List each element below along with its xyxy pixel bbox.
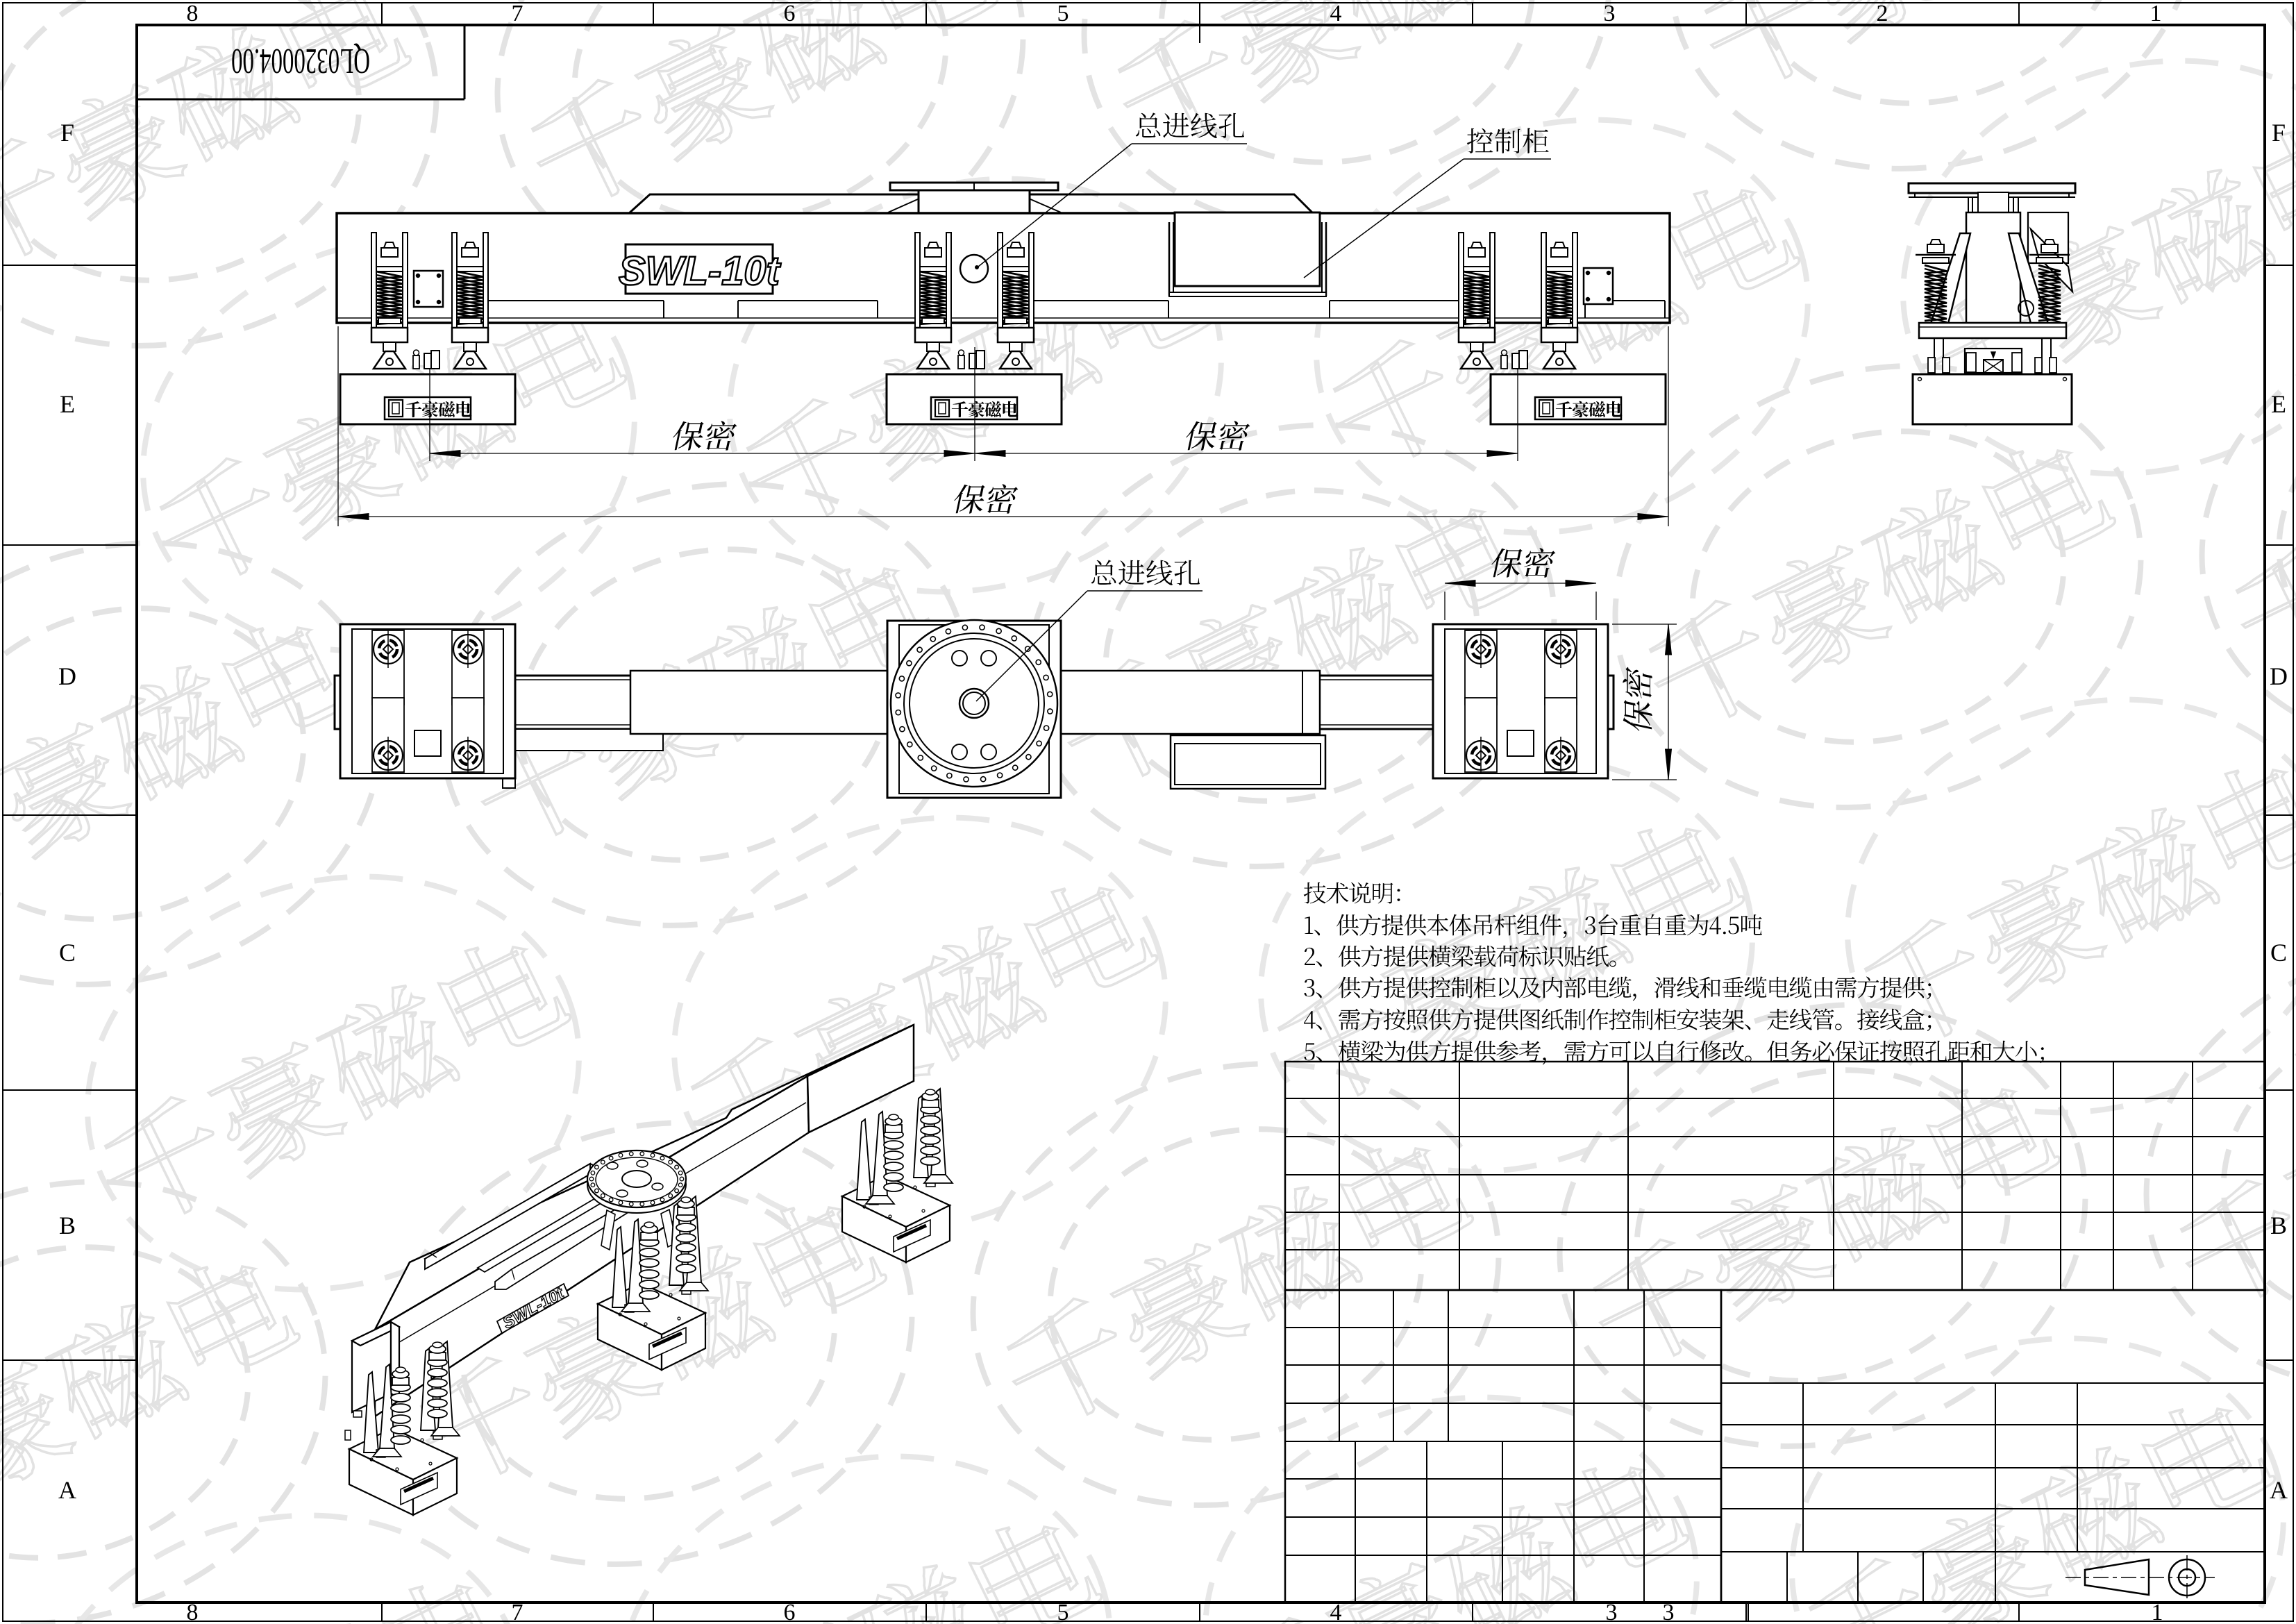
- svg-text:8: 8: [187, 1600, 199, 1624]
- svg-text:5: 5: [1057, 1600, 1069, 1624]
- svg-text:B: B: [2270, 1212, 2287, 1239]
- svg-text:SWL-10t: SWL-10t: [619, 249, 782, 294]
- svg-text:F: F: [2272, 119, 2286, 147]
- svg-text:F: F: [60, 119, 74, 147]
- svg-text:QL0320004.00: QL0320004.00: [231, 41, 370, 81]
- svg-text:8: 8: [187, 1, 199, 26]
- svg-text:6: 6: [784, 1, 796, 26]
- svg-text:C: C: [2270, 939, 2287, 966]
- svg-text:7: 7: [512, 1, 523, 26]
- svg-text:2: 2: [1877, 1, 1888, 26]
- svg-text:4: 4: [1330, 1, 1342, 26]
- svg-text:6: 6: [784, 1600, 796, 1624]
- svg-text:B: B: [59, 1212, 76, 1239]
- svg-text:1: 1: [2150, 1, 2162, 26]
- svg-text:C: C: [59, 939, 76, 966]
- svg-text:E: E: [2271, 390, 2286, 418]
- svg-text:7: 7: [512, 1600, 523, 1624]
- svg-text:3: 3: [1604, 1, 1616, 26]
- svg-text:5: 5: [1057, 1, 1069, 26]
- svg-text:E: E: [60, 390, 75, 418]
- svg-text:D: D: [2270, 662, 2288, 690]
- svg-text:A: A: [58, 1476, 76, 1504]
- svg-text:D: D: [58, 662, 76, 690]
- svg-text:A: A: [2270, 1476, 2288, 1504]
